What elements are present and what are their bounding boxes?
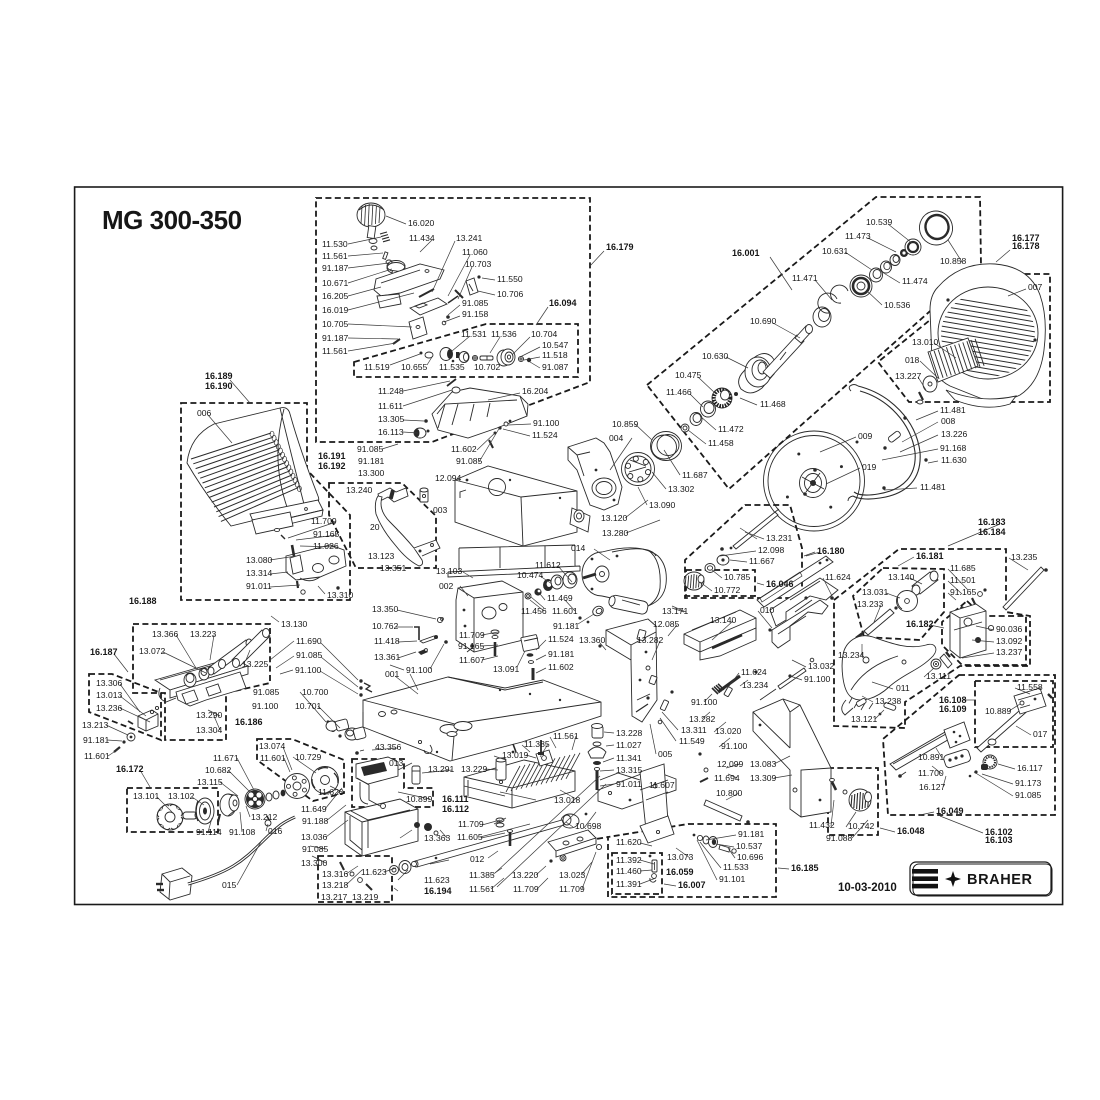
svg-text:12.094: 12.094	[435, 473, 462, 483]
svg-text:13.305: 13.305	[378, 414, 405, 424]
svg-text:11.341: 11.341	[616, 753, 642, 763]
svg-text:11.481: 11.481	[920, 482, 946, 492]
svg-text:13.309: 13.309	[750, 773, 777, 783]
svg-text:13.218: 13.218	[322, 880, 349, 890]
svg-text:11.535: 11.535	[439, 362, 465, 372]
svg-text:13.115: 13.115	[197, 777, 223, 787]
svg-text:91.181: 91.181	[358, 456, 385, 466]
svg-text:13.366: 13.366	[152, 629, 179, 639]
svg-text:014: 014	[571, 543, 586, 553]
svg-text:13.228: 13.228	[616, 728, 643, 738]
svg-text:001: 001	[385, 669, 400, 679]
svg-text:91.165: 91.165	[313, 529, 340, 539]
svg-text:13.019: 13.019	[502, 750, 529, 760]
svg-text:11.607: 11.607	[459, 655, 485, 665]
svg-text:13.018: 13.018	[554, 795, 581, 805]
svg-text:12.085: 12.085	[653, 619, 680, 629]
svg-text:BRAHER: BRAHER	[967, 872, 1033, 888]
svg-text:11.630: 11.630	[941, 455, 967, 465]
svg-text:10.536: 10.536	[884, 300, 911, 310]
svg-text:11.700: 11.700	[918, 768, 944, 778]
svg-text:16.172: 16.172	[116, 764, 144, 774]
svg-text:11.473: 11.473	[845, 231, 871, 241]
svg-text:91.085: 91.085	[357, 444, 384, 454]
svg-text:13.217: 13.217	[321, 892, 348, 902]
svg-text:13.302: 13.302	[668, 484, 695, 494]
svg-text:10.701: 10.701	[295, 701, 322, 711]
svg-text:11.601: 11.601	[552, 606, 578, 616]
svg-text:10.858: 10.858	[940, 256, 967, 266]
svg-text:10.475: 10.475	[675, 370, 702, 380]
svg-text:11.456: 11.456	[521, 606, 547, 616]
svg-text:11.466: 11.466	[666, 387, 692, 397]
svg-text:10.889: 10.889	[985, 706, 1012, 716]
svg-text:11.533: 11.533	[723, 862, 749, 872]
svg-text:003: 003	[433, 505, 448, 515]
svg-text:91.011: 91.011	[246, 581, 272, 591]
svg-text:11.391: 11.391	[616, 879, 642, 889]
svg-text:91.181: 91.181	[83, 735, 110, 745]
svg-text:13.315: 13.315	[616, 765, 643, 775]
svg-text:91.100: 91.100	[721, 741, 748, 751]
svg-text:11.607: 11.607	[649, 780, 675, 790]
svg-text:10.762: 10.762	[372, 621, 399, 631]
svg-text:91.158: 91.158	[462, 309, 489, 319]
svg-text:91.085: 91.085	[302, 844, 329, 854]
svg-text:16.192: 16.192	[318, 461, 346, 471]
svg-text:10.539: 10.539	[866, 217, 893, 227]
svg-text:11.620: 11.620	[318, 787, 344, 797]
svg-text:13.304: 13.304	[196, 725, 223, 735]
svg-text:11.624: 11.624	[825, 572, 851, 582]
svg-text:91.168: 91.168	[940, 443, 967, 453]
svg-text:13.227: 13.227	[895, 371, 922, 381]
svg-text:13.036: 13.036	[301, 832, 328, 842]
svg-text:11.709: 11.709	[459, 630, 485, 640]
svg-text:008: 008	[941, 416, 956, 426]
svg-text:11.620: 11.620	[616, 837, 642, 847]
svg-text:13.306: 13.306	[96, 678, 123, 688]
svg-text:91.100: 91.100	[295, 665, 322, 675]
svg-text:13.351: 13.351	[380, 563, 407, 573]
svg-text:13.310: 13.310	[327, 590, 354, 600]
svg-text:16.048: 16.048	[897, 826, 925, 836]
svg-text:11.536: 11.536	[491, 329, 517, 339]
svg-text:16.183: 16.183	[978, 517, 1006, 527]
svg-text:13.073: 13.073	[667, 852, 694, 862]
svg-text:10.706: 10.706	[497, 289, 524, 299]
svg-text:10.547: 10.547	[542, 340, 569, 350]
svg-text:90.036: 90.036	[996, 624, 1023, 634]
svg-text:006: 006	[197, 408, 212, 418]
svg-text:13.072: 13.072	[139, 646, 166, 656]
svg-text:13.140: 13.140	[888, 572, 915, 582]
svg-text:16.111: 16.111	[442, 794, 469, 804]
svg-text:16.001: 16.001	[732, 248, 760, 258]
svg-text:13.234: 13.234	[838, 650, 865, 660]
svg-text:13.314: 13.314	[246, 568, 273, 578]
svg-text:11.501: 11.501	[950, 575, 976, 585]
svg-text:11.709: 11.709	[458, 819, 484, 829]
svg-text:11.392: 11.392	[616, 855, 642, 865]
svg-text:20: 20	[370, 522, 380, 532]
svg-text:11.685: 11.685	[950, 563, 976, 573]
svg-text:91.011: 91.011	[616, 779, 642, 789]
svg-text:13.226: 13.226	[941, 429, 968, 439]
svg-text:13.121: 13.121	[851, 714, 878, 724]
svg-text:13.023: 13.023	[559, 870, 586, 880]
svg-text:13.130: 13.130	[281, 619, 308, 629]
svg-text:13.120: 13.120	[601, 513, 628, 523]
svg-text:11.524: 11.524	[532, 430, 558, 440]
svg-text:005: 005	[658, 749, 673, 759]
svg-text:11.519: 11.519	[364, 362, 390, 372]
svg-text:91.087: 91.087	[542, 362, 569, 372]
svg-text:13.219: 13.219	[352, 892, 379, 902]
svg-text:16.094: 16.094	[549, 298, 577, 308]
svg-text:12.098: 12.098	[758, 545, 785, 555]
svg-text:10.537: 10.537	[736, 841, 763, 851]
svg-text:11.602: 11.602	[548, 662, 574, 672]
svg-text:16.189: 16.189	[205, 371, 233, 381]
svg-text:13.235: 13.235	[1011, 552, 1038, 562]
svg-text:11.481: 11.481	[940, 405, 966, 415]
svg-text:13.363: 13.363	[424, 833, 451, 843]
svg-text:11.612: 11.612	[535, 560, 561, 570]
svg-text:11.624: 11.624	[741, 667, 767, 677]
svg-text:11.518: 11.518	[542, 350, 568, 360]
svg-text:13.111: 13.111	[926, 671, 951, 681]
svg-text:11.605: 11.605	[457, 832, 483, 842]
svg-text:13.080: 13.080	[246, 555, 273, 565]
svg-text:010: 010	[760, 605, 775, 615]
svg-text:91.108: 91.108	[229, 827, 256, 837]
svg-text:009: 009	[858, 431, 873, 441]
svg-text:11.385: 11.385	[524, 739, 550, 749]
svg-text:13.213: 13.213	[82, 720, 109, 730]
svg-text:019: 019	[862, 462, 877, 472]
svg-text:16.191: 16.191	[318, 451, 346, 461]
svg-text:11.468: 11.468	[760, 399, 786, 409]
svg-text:91.100: 91.100	[252, 701, 279, 711]
svg-text:11.561: 11.561	[322, 346, 348, 356]
svg-text:13.010: 13.010	[912, 337, 939, 347]
svg-text:10.630: 10.630	[702, 351, 729, 361]
svg-text:13.282: 13.282	[689, 714, 716, 724]
svg-text:16.103: 16.103	[985, 835, 1013, 845]
svg-text:91.085: 91.085	[456, 456, 483, 466]
svg-text:11.561: 11.561	[469, 884, 495, 894]
svg-text:91.114: 91.114	[196, 827, 222, 837]
svg-text:10.705: 10.705	[322, 319, 349, 329]
svg-text:13.140: 13.140	[710, 615, 737, 625]
svg-text:13.236: 13.236	[96, 703, 123, 713]
svg-text:13.237: 13.237	[996, 647, 1023, 657]
svg-text:11.385: 11.385	[469, 870, 495, 880]
svg-text:16.194: 16.194	[424, 886, 452, 896]
svg-text:10.742: 10.742	[848, 821, 875, 831]
svg-text:11.460: 11.460	[616, 866, 642, 876]
svg-text:91.188: 91.188	[302, 816, 329, 826]
svg-text:11.687: 11.687	[682, 470, 708, 480]
svg-text:13.103: 13.103	[436, 566, 463, 576]
svg-text:13.361: 13.361	[374, 652, 401, 662]
svg-text:13.290: 13.290	[196, 710, 223, 720]
svg-text:91.100: 91.100	[533, 418, 560, 428]
svg-text:10.772: 10.772	[714, 585, 741, 595]
svg-text:016: 016	[268, 826, 283, 836]
svg-text:11.524: 11.524	[548, 634, 574, 644]
svg-text:11.649: 11.649	[301, 804, 327, 814]
svg-text:11.558: 11.558	[1017, 682, 1043, 692]
svg-text:16.190: 16.190	[205, 381, 233, 391]
svg-text:91.085: 91.085	[253, 687, 280, 697]
svg-text:11.474: 11.474	[902, 276, 928, 286]
svg-text:13.091: 13.091	[493, 664, 520, 674]
svg-text:11.027: 11.027	[616, 740, 642, 750]
svg-text:10.800: 10.800	[716, 788, 743, 798]
svg-text:11.549: 11.549	[679, 736, 705, 746]
svg-text:13.032: 13.032	[808, 661, 835, 671]
svg-text:11.531: 11.531	[461, 329, 487, 339]
svg-text:13.092: 13.092	[996, 636, 1023, 646]
svg-text:011: 011	[896, 683, 910, 693]
svg-text:10.899: 10.899	[406, 794, 433, 804]
svg-text:91.100: 91.100	[804, 674, 831, 684]
svg-text:13.238: 13.238	[875, 696, 902, 706]
svg-text:91.085: 91.085	[462, 298, 489, 308]
svg-text:91.165: 91.165	[950, 587, 977, 597]
svg-text:16.182: 16.182	[906, 619, 934, 629]
svg-text:MG 300-350: MG 300-350	[102, 205, 242, 235]
svg-text:11.432: 11.432	[809, 820, 835, 830]
svg-text:017: 017	[1033, 729, 1048, 739]
svg-text:16.185: 16.185	[791, 863, 819, 873]
svg-text:002: 002	[439, 581, 454, 591]
svg-text:012: 012	[470, 854, 485, 864]
svg-text:13.102: 13.102	[168, 791, 195, 801]
svg-text:13.234: 13.234	[742, 680, 769, 690]
svg-text:13.300: 13.300	[301, 858, 328, 868]
svg-text:11.561: 11.561	[553, 731, 579, 741]
svg-text:91.101: 91.101	[719, 874, 746, 884]
svg-text:13.350: 13.350	[372, 604, 399, 614]
svg-text:10-03-2010: 10-03-2010	[838, 882, 897, 894]
svg-text:16.127: 16.127	[919, 782, 946, 792]
svg-text:16.187: 16.187	[90, 647, 118, 657]
svg-text:16.205: 16.205	[322, 291, 349, 301]
svg-text:16.049: 16.049	[936, 806, 964, 816]
svg-text:16.020: 16.020	[408, 218, 435, 228]
svg-text:91.181: 91.181	[738, 829, 765, 839]
svg-text:16.113: 16.113	[378, 427, 404, 437]
svg-text:16.059: 16.059	[666, 867, 694, 877]
svg-text:10.859: 10.859	[612, 419, 639, 429]
svg-text:16.046: 16.046	[766, 579, 794, 589]
svg-text:16.180: 16.180	[817, 546, 845, 556]
svg-text:13.231: 13.231	[766, 533, 793, 543]
svg-text:13.291: 13.291	[428, 764, 455, 774]
svg-text:11.561: 11.561	[322, 251, 348, 261]
svg-text:13.282: 13.282	[637, 635, 664, 645]
svg-text:16.181: 16.181	[916, 551, 944, 561]
svg-text:13.090: 13.090	[649, 500, 676, 510]
svg-text:13.360: 13.360	[579, 635, 606, 645]
svg-text:16.007: 16.007	[678, 880, 706, 890]
svg-text:91.187: 91.187	[322, 263, 349, 273]
svg-text:13.280: 13.280	[602, 528, 629, 538]
svg-text:11.550: 11.550	[497, 274, 523, 284]
svg-text:018: 018	[905, 355, 920, 365]
svg-text:10.729: 10.729	[295, 752, 322, 762]
svg-text:13.031: 13.031	[862, 587, 889, 597]
svg-text:11.623: 11.623	[361, 867, 387, 877]
svg-text:13.311: 13.311	[681, 725, 707, 735]
svg-text:12.099: 12.099	[717, 759, 744, 769]
svg-text:91.100: 91.100	[691, 697, 718, 707]
svg-text:11.434: 11.434	[409, 233, 435, 243]
svg-text:16.178: 16.178	[1012, 241, 1040, 251]
svg-text:11.611: 11.611	[378, 401, 403, 411]
svg-text:11.709: 11.709	[513, 884, 539, 894]
svg-text:91.085: 91.085	[1015, 790, 1042, 800]
svg-text:13.241: 13.241	[456, 233, 483, 243]
svg-text:10.700: 10.700	[302, 687, 329, 697]
svg-text:013: 013	[389, 758, 404, 768]
svg-text:16.179: 16.179	[606, 242, 634, 252]
svg-text:13.240: 13.240	[346, 485, 373, 495]
svg-text:11.471: 11.471	[792, 273, 818, 283]
svg-text:10.702: 10.702	[474, 362, 501, 372]
svg-text:11.026: 11.026	[313, 541, 339, 551]
svg-text:13.233: 13.233	[857, 599, 884, 609]
svg-text:10.690: 10.690	[750, 316, 777, 326]
svg-text:13.229: 13.229	[461, 764, 488, 774]
svg-text:11.418: 11.418	[374, 636, 400, 646]
svg-text:10.703: 10.703	[465, 259, 492, 269]
svg-text:13.013: 13.013	[96, 690, 123, 700]
svg-text:13.225: 13.225	[242, 659, 269, 669]
svg-text:11.623: 11.623	[424, 875, 450, 885]
svg-text:13.101: 13.101	[133, 791, 160, 801]
svg-text:91.181: 91.181	[548, 649, 575, 659]
svg-text:10.655: 10.655	[401, 362, 428, 372]
svg-text:13.083: 13.083	[750, 759, 777, 769]
svg-text:16.112: 16.112	[442, 804, 469, 814]
svg-text:13.220: 13.220	[512, 870, 539, 880]
svg-text:10.474: 10.474	[517, 570, 544, 580]
svg-text:015: 015	[222, 880, 237, 890]
svg-text:91.100: 91.100	[406, 665, 433, 675]
svg-text:11.469: 11.469	[547, 593, 573, 603]
svg-text:13.212: 13.212	[251, 812, 278, 822]
svg-text:11.671: 11.671	[213, 753, 239, 763]
svg-text:16.188: 16.188	[129, 596, 157, 606]
svg-text:11.060: 11.060	[462, 247, 488, 257]
svg-text:11.694: 11.694	[714, 773, 740, 783]
svg-text:11.248: 11.248	[378, 386, 404, 396]
svg-text:91.187: 91.187	[322, 333, 349, 343]
svg-text:10.891: 10.891	[918, 752, 945, 762]
svg-text:13.171: 13.171	[662, 606, 689, 616]
svg-text:11.472: 11.472	[718, 424, 744, 434]
svg-text:11.709: 11.709	[311, 516, 337, 526]
svg-text:11.667: 11.667	[749, 556, 775, 566]
svg-text:13.123: 13.123	[368, 551, 395, 561]
svg-text:11.601: 11.601	[260, 753, 286, 763]
svg-text:91.088: 91.088	[826, 833, 853, 843]
svg-text:11.458: 11.458	[708, 438, 734, 448]
svg-text:91.173: 91.173	[1015, 778, 1042, 788]
svg-text:13.074: 13.074	[259, 741, 286, 751]
svg-text:10.631: 10.631	[822, 246, 849, 256]
svg-text:13.300: 13.300	[358, 468, 385, 478]
svg-text:10.696: 10.696	[737, 852, 764, 862]
svg-text:007: 007	[1028, 282, 1043, 292]
svg-text:11.601: 11.601	[84, 751, 110, 761]
svg-text:11.530: 11.530	[322, 239, 348, 249]
svg-text:16.204: 16.204	[522, 386, 549, 396]
svg-text:10.682: 10.682	[205, 765, 232, 775]
svg-text:16.109: 16.109	[939, 704, 967, 714]
svg-text:10.671: 10.671	[322, 278, 349, 288]
svg-text:16.186: 16.186	[235, 717, 263, 727]
svg-text:13.020: 13.020	[715, 726, 742, 736]
svg-text:16.019: 16.019	[322, 305, 349, 315]
svg-text:13.316: 13.316	[322, 869, 349, 879]
svg-text:10.704: 10.704	[531, 329, 558, 339]
svg-text:004: 004	[609, 433, 624, 443]
svg-text:16.184: 16.184	[978, 527, 1006, 537]
svg-text:10.785: 10.785	[724, 572, 751, 582]
svg-text:11.690: 11.690	[296, 636, 322, 646]
svg-text:91.085: 91.085	[296, 650, 323, 660]
svg-text:91.181: 91.181	[553, 621, 580, 631]
svg-text:10.698: 10.698	[575, 821, 602, 831]
svg-text:13.223: 13.223	[190, 629, 217, 639]
svg-text:91.165: 91.165	[458, 641, 485, 651]
svg-text:11.709: 11.709	[559, 884, 585, 894]
svg-text:11.602: 11.602	[451, 444, 477, 454]
svg-text:16.117: 16.117	[1017, 763, 1043, 773]
svg-text:43.356: 43.356	[375, 742, 402, 752]
